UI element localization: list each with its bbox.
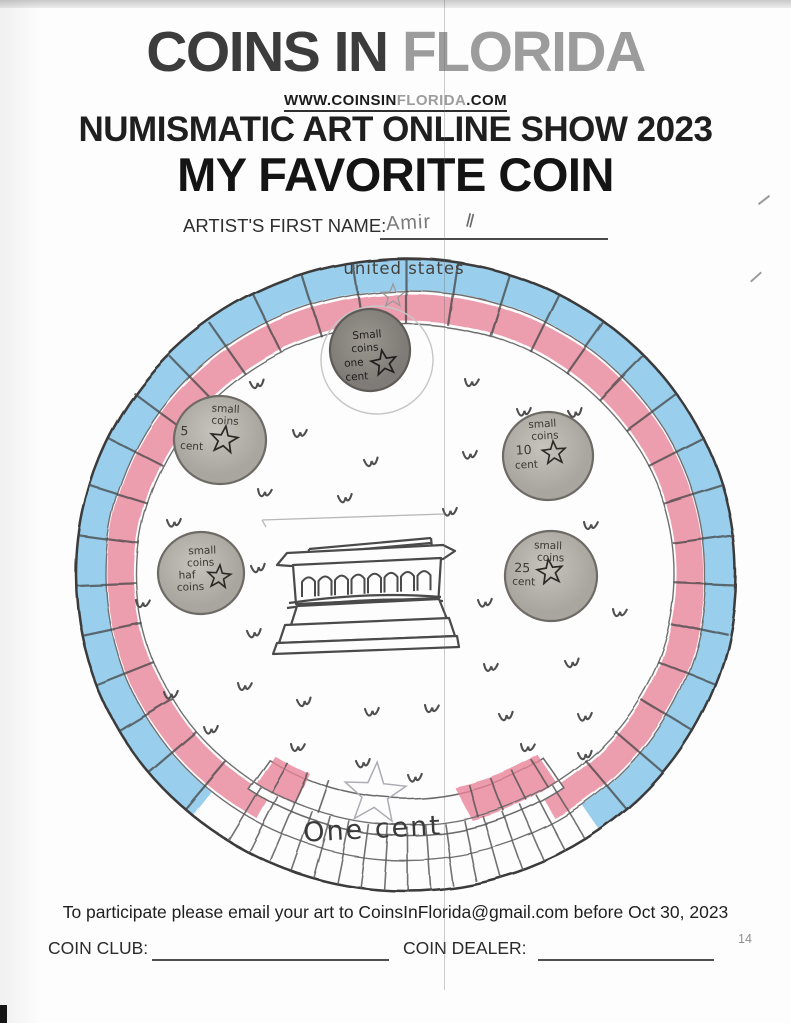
title-light-part: FLORIDA (402, 20, 645, 84)
mini-coin-text: 5 (180, 423, 189, 438)
mini-coin-text: 25 (514, 560, 530, 576)
scanner-edge-strip (0, 0, 791, 8)
coin-bottom-legend: One cent (302, 810, 442, 848)
coin-club-label: COIN CLUB: (48, 938, 148, 959)
page-number: 14 (738, 932, 752, 946)
url-part-3: .COM (466, 92, 507, 109)
website-url-underlined: WWW.COINSINFLORIDA.COM (284, 92, 507, 112)
participation-instructions: To participate please email your art to … (0, 902, 791, 923)
mini-coin-text: coins (531, 429, 559, 442)
website-url: WWW.COINSINFLORIDA.COM (0, 92, 791, 109)
mini-coin-text: small (534, 539, 562, 552)
mini-coin-text: cent (512, 576, 535, 589)
coin-dealer-label: COIN DEALER: (403, 938, 527, 959)
scanner-corner-artifact (0, 1005, 7, 1023)
mini-coin-text: small (188, 544, 216, 557)
artist-name-label: ARTIST'S FIRST NAME: (183, 215, 386, 237)
url-part-1: WWW.COINSIN (284, 92, 397, 109)
coin-drawing-svg: Small coins one cent small coins 5 cent … (72, 256, 738, 896)
url-part-2: FLORIDA (397, 92, 466, 109)
mini-coin-text: cent (180, 440, 204, 453)
stray-pencil-mark (750, 272, 762, 283)
scanned-document-page: COINS IN FLORIDA WWW.COINSINFLORIDA.COM … (0, 0, 791, 1023)
artist-name-extra-marks: ll (463, 211, 475, 234)
title-dark-part: COINS IN (146, 20, 402, 84)
show-subtitle: NUMISMATIC ART ONLINE SHOW 2023 (0, 110, 791, 150)
mini-coin-text: one (344, 356, 364, 369)
coin-dealer-field (538, 959, 714, 961)
coin-top-legend: united states (343, 259, 464, 278)
mini-coin-haf-coins: small coins haf coins (157, 531, 246, 616)
contest-title: MY FAVORITE COIN (0, 147, 791, 202)
coin-drawing: Small coins one cent small coins 5 cent … (72, 256, 738, 896)
mini-coin-text: coins (351, 341, 379, 355)
mini-coin-text: haf (178, 569, 195, 582)
artist-name-field (380, 238, 608, 240)
mini-coin-text: coins (177, 581, 205, 594)
artist-name-handwriting: Amir (385, 211, 431, 236)
lincoln-memorial-drawing (273, 538, 459, 654)
paper-fold-line (444, 0, 445, 990)
coin-club-field (152, 959, 389, 961)
mini-coin-text: Small (352, 328, 382, 342)
mini-coin-text: coins (187, 557, 215, 570)
mini-coin-text: 10 (515, 442, 532, 458)
mini-coin-text: coins (211, 415, 239, 428)
page-title: COINS IN FLORIDA (0, 24, 791, 81)
mini-coin-text: cent (515, 459, 539, 472)
mini-coin-text: cent (345, 370, 369, 384)
